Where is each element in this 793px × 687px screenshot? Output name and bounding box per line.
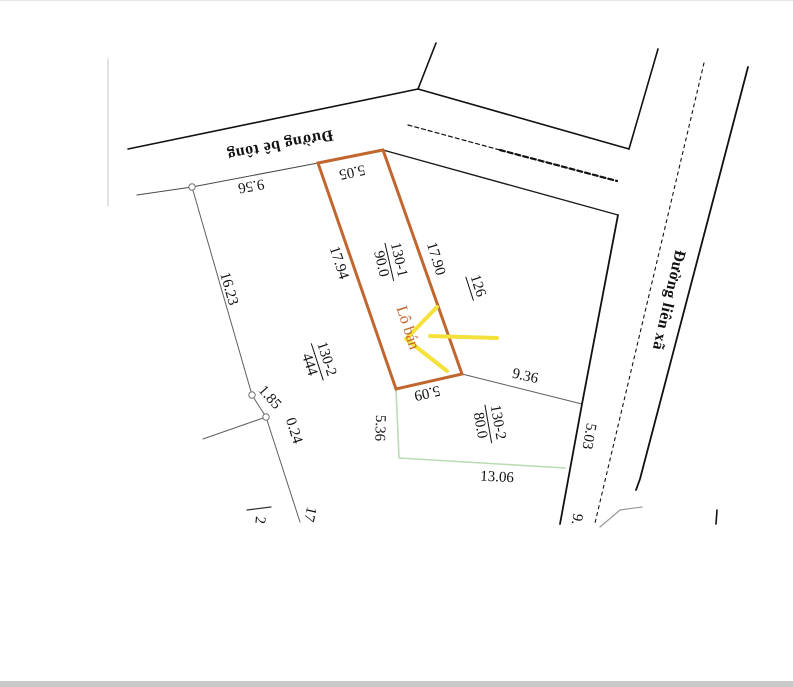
label-dim-5-03: 5.03 bbox=[578, 422, 598, 451]
label-dim-17-partial-text: 17 bbox=[300, 505, 319, 523]
label-dim-2-partial: 2 bbox=[251, 516, 267, 525]
road-curve-bottom bbox=[600, 507, 642, 527]
map-canvas bbox=[0, 1, 793, 687]
label-dim-5-36: 5.36 bbox=[371, 415, 387, 442]
label-dim-9-partial: 9. bbox=[567, 512, 584, 526]
boundary-west-stub bbox=[203, 417, 266, 439]
label-2-underline bbox=[247, 507, 271, 510]
label-dim-17-partial: 17 bbox=[300, 505, 318, 523]
highlight-arrow-tail-icon bbox=[430, 336, 497, 338]
survey-point-0 bbox=[189, 184, 195, 190]
road-right-right-edge bbox=[636, 67, 748, 490]
road-right-centerline bbox=[595, 63, 704, 523]
label-dim-13-06-text: 13.06 bbox=[480, 468, 515, 486]
label-dim-2-partial-text: 2 bbox=[251, 516, 268, 525]
road-top-lower-edge-right bbox=[383, 150, 618, 215]
label-plot-130-2-80-label: 130-280.0 bbox=[468, 402, 508, 446]
cadastral-map: Đường bê tôngĐường liên xã9.565.0517.941… bbox=[0, 0, 793, 687]
road-right-left-edge-lower bbox=[560, 215, 618, 524]
label-dim-9-56: 9.56 bbox=[237, 175, 266, 195]
road-top-upper-edge-right bbox=[418, 89, 629, 149]
bottom-edge-bar bbox=[0, 681, 793, 687]
road-top-lower-edge-left bbox=[137, 163, 318, 195]
label-dim-13-06: 13.06 bbox=[480, 469, 515, 486]
road-right-left-edge-upper bbox=[629, 49, 658, 149]
boundary-north-branch bbox=[418, 43, 436, 89]
road-top-centerline-b bbox=[500, 150, 617, 181]
survey-point-2 bbox=[263, 414, 269, 420]
label-dim-5-36-text: 5.36 bbox=[371, 415, 388, 442]
road-top-centerline-a bbox=[408, 125, 500, 150]
tick-mark bbox=[716, 510, 717, 524]
label-plot-130-1-label: 130-190.0 bbox=[368, 239, 410, 285]
